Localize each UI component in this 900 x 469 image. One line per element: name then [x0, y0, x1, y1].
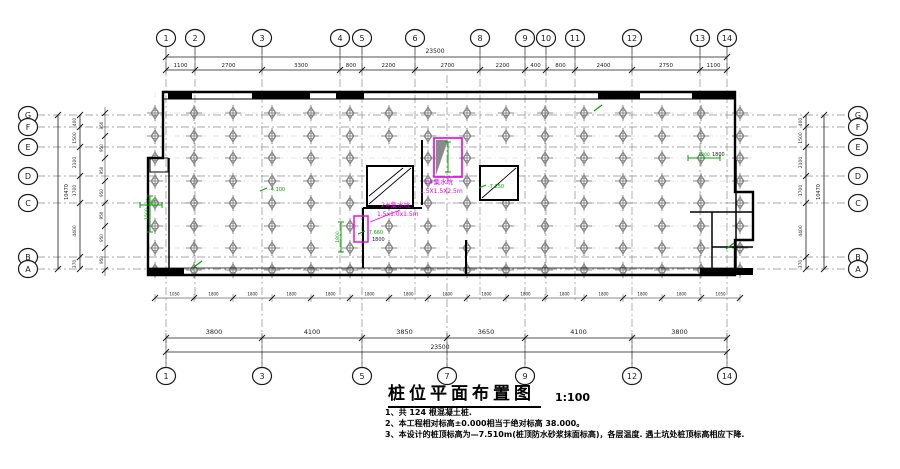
green-mark: 1800: [335, 222, 344, 252]
dim-side: 1700: [798, 185, 804, 197]
pile-symbol: [654, 105, 670, 121]
axis-bubble-11: 11: [566, 30, 585, 47]
pile-symbol: [693, 195, 709, 211]
pile-symbol: [615, 240, 631, 256]
green-dim-label: 1500: [144, 208, 150, 220]
axis-bubble-C: C: [849, 195, 868, 212]
pile-symbol: [576, 240, 592, 256]
pile-symbol: [654, 240, 670, 256]
axis-bubble-label: E: [855, 143, 860, 152]
subdim-left: 950: [99, 256, 104, 264]
pile-symbol: [342, 105, 358, 121]
dim-side: 2100: [72, 157, 78, 169]
pile-symbol: [225, 218, 241, 234]
pile-symbol: [381, 105, 397, 121]
subdim-bottom: 1800: [637, 292, 648, 297]
pile-symbol: [654, 195, 670, 211]
pile-symbol: [420, 105, 436, 121]
axis-bubble-2: 2: [186, 30, 205, 47]
pile-symbol: [615, 218, 631, 234]
dim-bottom-2: 3850: [396, 328, 413, 336]
axis-bubble-label: 2: [192, 34, 197, 43]
green-elevation-label: -4.100: [269, 187, 285, 193]
plan-text: 1800: [372, 237, 385, 243]
subdim-left: 950: [99, 211, 104, 219]
pile-symbol: [342, 195, 358, 211]
axis-bubble-label: 9: [522, 34, 527, 43]
subdim-bottom: 1800: [208, 292, 219, 297]
pile-symbol: [342, 128, 358, 144]
axis-bubble-label: 5: [359, 372, 364, 381]
plan-text: 1800: [712, 152, 725, 158]
axis-bubble-E: E: [849, 139, 868, 156]
axis-bubble-10: 10: [537, 30, 556, 47]
axis-bubble-label: 3: [259, 34, 264, 43]
axis-bubble-label: 8: [477, 34, 482, 43]
pile-symbol: [147, 105, 163, 121]
axis-bubble-12: 12: [623, 30, 642, 47]
dim-bottom-0: 3800: [206, 328, 223, 336]
subdim-bottom: 1800: [598, 292, 609, 297]
dim-top-1: 2700: [222, 63, 236, 69]
dim-top-4: 2200: [382, 63, 396, 69]
green-mark: -4.100: [260, 187, 285, 193]
pile-symbol: [576, 173, 592, 189]
axis-bubble-label: 10: [541, 34, 551, 43]
drawing-scale: 1:100: [555, 391, 590, 408]
pile-symbol: [303, 218, 319, 234]
sump-pit-label-1: 1#集水坑1.5X1.5X2.5m: [420, 177, 463, 195]
dim-top-8: 800: [555, 63, 566, 69]
pile-symbol: [615, 195, 631, 211]
axis-bubble-label: 6: [412, 34, 417, 43]
pile-symbol: [147, 128, 163, 144]
pile-symbol: [342, 173, 358, 189]
axis-bubble-E: E: [19, 139, 38, 156]
pile-symbol: [459, 195, 475, 211]
pile-symbol: [459, 218, 475, 234]
axis-bubble-14: 14: [718, 368, 737, 385]
axis-bubble-1: 1: [157, 30, 176, 47]
green-dim-label: 1800: [698, 152, 710, 158]
pile-symbol: [615, 128, 631, 144]
subdim-bottom: 1800: [247, 292, 258, 297]
axis-bubble-label: A: [855, 265, 861, 274]
pit-annotations: 1#集水坑1.5X1.5X2.5m2#集水坑1.5x1.0x1.5m180018…: [372, 152, 725, 243]
pile-symbol: [498, 105, 514, 121]
subdim-bottom: 1800: [559, 292, 570, 297]
subdim-left: 950: [99, 234, 104, 242]
pile-symbol: [225, 150, 241, 166]
axis-bubble-5: 5: [353, 30, 372, 47]
pile-symbol: [186, 240, 202, 256]
pile-symbol: [381, 128, 397, 144]
dim-side: 1700: [72, 185, 78, 197]
pile-symbol: [225, 240, 241, 256]
axis-bubble-A: A: [849, 261, 868, 278]
pile-symbol: [381, 218, 397, 234]
pile-symbol: [537, 173, 553, 189]
drawing-title: 桩位平面布置图: [388, 379, 541, 408]
subdim-bottom: 1050: [169, 292, 180, 297]
subdim-bottom: 1800: [403, 292, 414, 297]
dim-bottom-4: 4100: [570, 328, 587, 336]
pile-symbol: [615, 173, 631, 189]
axis-bubble-5: 5: [353, 368, 372, 385]
dim-side: 2100: [798, 157, 804, 169]
drawing-notes: 1、共 124 根混凝土桩. 2、本工程相对标高±0.000相当于绝对标高 38…: [385, 407, 865, 440]
axis-bubble-label: 3: [259, 372, 264, 381]
pile-symbol: [303, 150, 319, 166]
axis-bubble-F: F: [19, 119, 38, 136]
overall-dim-side: 10470: [816, 184, 822, 200]
pit-hatch: [436, 140, 448, 175]
axis-bubble-label: 14: [722, 372, 732, 381]
pile-symbol: [420, 240, 436, 256]
pile-symbol: [732, 218, 748, 234]
pile-symbol: [186, 173, 202, 189]
pile-symbol: [615, 150, 631, 166]
dim-side: 400: [72, 118, 78, 127]
pile-symbol: [693, 105, 709, 121]
pile-symbol: [537, 240, 553, 256]
axis-bubble-label: 1: [163, 34, 168, 43]
pile-symbol: [303, 240, 319, 256]
pile-symbol: [264, 150, 280, 166]
pile-symbol: [420, 218, 436, 234]
dim-side: 1500: [798, 132, 804, 144]
axis-bubble-label: 5: [359, 34, 364, 43]
axis-bubble-label: 12: [627, 372, 637, 381]
green-mark: [594, 105, 602, 111]
axis-bubble-label: D: [855, 172, 861, 181]
pile-symbol: [264, 240, 280, 256]
axis-bubble-1: 1: [157, 368, 176, 385]
pile-symbol: [342, 218, 358, 234]
subdim-left: 950: [99, 166, 104, 174]
pile-symbol: [498, 128, 514, 144]
note-1: 1、共 124 根混凝土桩.: [385, 407, 865, 418]
pile-symbol: [654, 218, 670, 234]
subdim-left: 950: [99, 144, 104, 152]
pile-symbol: [303, 173, 319, 189]
pile-symbol: [459, 105, 475, 121]
dim-top-0: 1100: [174, 63, 188, 69]
axis-bubble-6: 6: [406, 30, 425, 47]
overall-dim-bottom: 23500: [430, 344, 449, 351]
pile-symbol: [693, 128, 709, 144]
axis-bubble-label: E: [25, 143, 30, 152]
pile-symbol: [264, 195, 280, 211]
pile-symbol: [576, 195, 592, 211]
axis-bubble-3: 3: [253, 30, 272, 47]
sump-pit-2-outline: [354, 216, 368, 242]
pile-symbol: [498, 240, 514, 256]
pile-symbol: [654, 128, 670, 144]
pile-symbol: [576, 218, 592, 234]
pile-symbol: [225, 195, 241, 211]
dim-side: 4400: [72, 225, 78, 237]
green-annotations: 1500180018001800-7.660-7.250-4.100: [140, 105, 734, 267]
axis-bubble-label: D: [25, 172, 31, 181]
pit-size: 1.5x1.0x1.5m: [377, 211, 419, 218]
subdim-bottom: 1800: [325, 292, 336, 297]
pile-symbol: [498, 218, 514, 234]
overall-dim-top: 23500: [425, 48, 444, 55]
note-2: 2、本工程相对标高±0.000相当于绝对标高 38.000。: [385, 418, 865, 429]
dim-side: 370: [798, 260, 804, 269]
green-dim-label: 1800: [145, 199, 157, 205]
pile-symbol: [225, 128, 241, 144]
pile-symbol: [342, 150, 358, 166]
dim-top-6: 2200: [496, 63, 510, 69]
axis-bubble-label: A: [25, 265, 31, 274]
pile-symbol: [537, 128, 553, 144]
pile-symbol: [186, 128, 202, 144]
axis-bubble-label: 14: [722, 34, 732, 43]
axis-bubble-label: 13: [695, 34, 705, 43]
pile-symbol: [537, 195, 553, 211]
axis-bubble-label: F: [856, 123, 861, 132]
dim-top-3: 800: [346, 63, 357, 69]
pile-symbol: [693, 173, 709, 189]
dim-side: 370: [72, 260, 78, 269]
pile-symbol: [186, 150, 202, 166]
pile-symbol: [186, 195, 202, 211]
subdim-bottom: 1800: [676, 292, 687, 297]
dim-bottom-3: 3650: [478, 328, 495, 336]
pile-symbol: [537, 150, 553, 166]
dim-top-10: 2750: [659, 63, 673, 69]
dim-top-5: 2700: [441, 63, 455, 69]
axis-bubble-label: 11: [570, 34, 580, 43]
subdim-bottom: 1800: [364, 292, 375, 297]
axis-bubble-label: C: [25, 199, 31, 208]
pile-symbol: [147, 240, 163, 256]
pile-symbol: [225, 105, 241, 121]
axis-bubble-C: C: [19, 195, 38, 212]
axis-bubble-label: F: [26, 123, 31, 132]
dim-top-7: 400: [530, 63, 541, 69]
subdim-bottom: 1800: [481, 292, 492, 297]
pile-symbol: [264, 128, 280, 144]
axis-bubble-label: 12: [627, 34, 637, 43]
pile-symbol: [303, 105, 319, 121]
axis-bubble-9: 9: [516, 30, 535, 47]
green-elevation-label: -7.660: [367, 230, 383, 236]
pile-symbol: [576, 150, 592, 166]
subdim-left: 950: [99, 189, 104, 197]
axis-bubble-4: 4: [331, 30, 350, 47]
axis-bubble-14: 14: [718, 30, 737, 47]
pile-symbol: [576, 105, 592, 121]
pile-symbol: [615, 105, 631, 121]
pile-symbol: [537, 105, 553, 121]
green-mark: [445, 142, 451, 172]
note-3: 3、本设计的桩顶标高为—7.510m(桩顶防水砂浆抹面标高)，各层温度. 遇土坑…: [385, 429, 865, 440]
dim-side: 1500: [72, 132, 78, 144]
overall-dim-side: 10470: [64, 184, 70, 200]
subdim-bottom: 1800: [442, 292, 453, 297]
dim-top-9: 2400: [597, 63, 611, 69]
subdim-bottom: 1050: [715, 292, 726, 297]
pile-symbol: [732, 195, 748, 211]
subdim-bottom: 1800: [286, 292, 297, 297]
pile-symbol: [693, 240, 709, 256]
green-dim-label: 1800: [335, 231, 341, 243]
axis-bubble-F: F: [849, 119, 868, 136]
axis-bubble-12: 12: [623, 368, 642, 385]
axis-bubble-13: 13: [691, 30, 710, 47]
pile-symbol: [264, 218, 280, 234]
pile-symbol: [264, 105, 280, 121]
dim-side: 4400: [798, 225, 804, 237]
pile-symbol: [225, 173, 241, 189]
axis-bubble-label: 1: [163, 372, 168, 381]
pile-symbol: [654, 173, 670, 189]
cad-pile-layout-screenshot: 2350011002700330080022002700220040080024…: [0, 0, 900, 469]
axis-bubble-A: A: [19, 261, 38, 278]
pile-symbol: [303, 195, 319, 211]
pile-symbol: [147, 173, 163, 189]
axis-bubble-D: D: [849, 168, 868, 185]
pile-symbol: [654, 150, 670, 166]
axis-bubble-label: C: [855, 199, 861, 208]
pile-symbol: [303, 128, 319, 144]
subdim-bottom: 1800: [520, 292, 531, 297]
dim-top-2: 3300: [294, 63, 308, 69]
pit-name: 2#集水坑: [381, 200, 411, 209]
pile-symbol: [186, 105, 202, 121]
axis-bubble-D: D: [19, 168, 38, 185]
subdim-left: 950: [99, 121, 104, 129]
axis-bubble-3: 3: [253, 368, 272, 385]
pile-symbol: [576, 128, 592, 144]
green-elevation-label: -7.250: [488, 184, 504, 190]
pit-name: 1#集水坑: [424, 177, 454, 186]
pile-symbol: [693, 218, 709, 234]
dim-side: 400: [798, 118, 804, 127]
axis-bubble-label: 4: [337, 34, 342, 43]
dim-bottom-1: 4100: [304, 328, 321, 336]
pit-size: 1.5X1.5X2.5m: [420, 188, 463, 195]
axis-bubble-8: 8: [471, 30, 490, 47]
pile-symbol: [186, 218, 202, 234]
dim-bottom-5: 3800: [671, 328, 688, 336]
pile-symbol: [537, 218, 553, 234]
dim-top-11: 1100: [707, 63, 721, 69]
